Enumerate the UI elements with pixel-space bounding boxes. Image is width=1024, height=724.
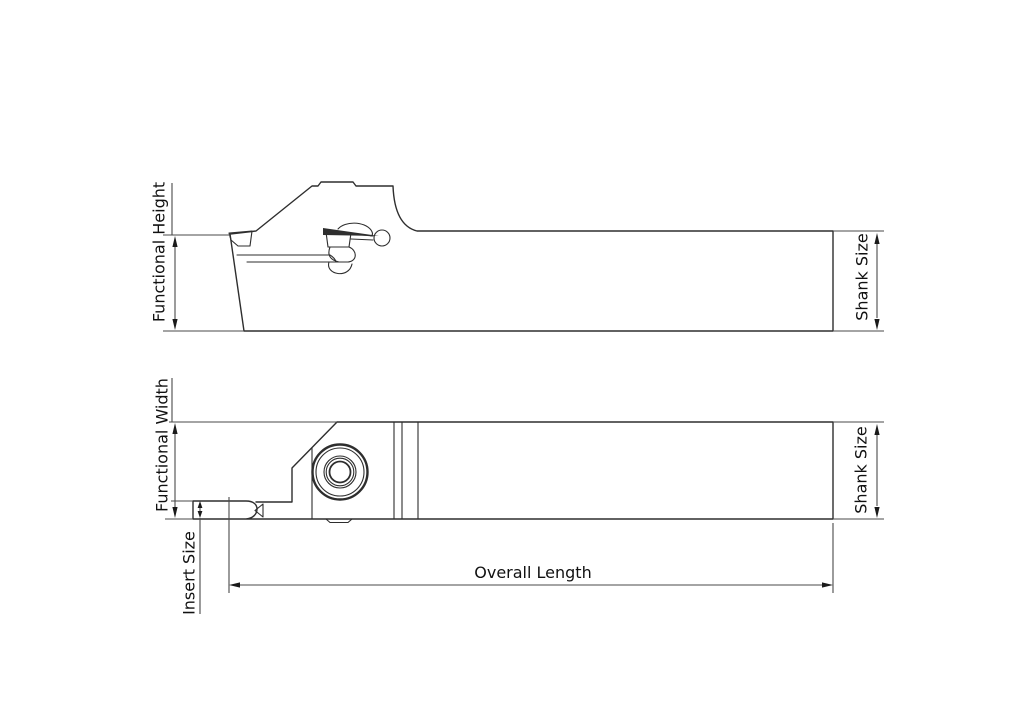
arrowhead-down [172,507,177,518]
arrowhead-right [822,582,833,587]
clamp-hook-curves [329,247,356,274]
functional-height-label: Functional Height [150,182,169,322]
engineering-drawing: Functional Height Shank Size [0,0,1024,724]
insert-size-label: Insert Size [180,531,199,615]
dim-insert-size: Insert Size [171,501,202,615]
screw-socket [330,462,351,483]
arrowhead-down [874,507,879,518]
drawing-canvas: Functional Height Shank Size [0,0,1024,724]
arrowhead-down [874,319,879,330]
dim-functional-height: Functional Height [150,182,245,331]
arrowhead-up [172,423,177,434]
arrowhead-down [198,511,203,518]
tool-side-outline [230,182,833,331]
pin-ball [374,230,390,246]
arrowhead-up [874,424,879,435]
overall-length-label: Overall Length [474,563,591,582]
arrowhead-up [874,233,879,244]
head-joint-lines [312,422,418,519]
arrowhead-up [172,236,177,247]
arrowhead-up [198,501,203,508]
shank-size-label-plan: Shank Size [852,426,871,513]
dim-overall-length: Overall Length [229,497,833,593]
screw-head-inner-ring [316,448,364,496]
dim-shank-size-side: Shank Size [833,231,884,331]
dim-shank-size-plan: Shank Size [833,422,884,519]
shank-size-label-side: Shank Size [853,233,872,320]
plan-view: Functional Width Insert Size Shank Size … [153,378,885,615]
functional-width-label: Functional Width [153,378,172,512]
tool-plan-outline [193,422,833,519]
clamp-screw [313,445,368,500]
screw-head-outer-ring [313,445,368,500]
arrowhead-down [172,319,177,330]
dim-functional-width: Functional Width [153,378,338,519]
side-view: Functional Height Shank Size [150,182,885,331]
arrowhead-left [229,582,240,587]
